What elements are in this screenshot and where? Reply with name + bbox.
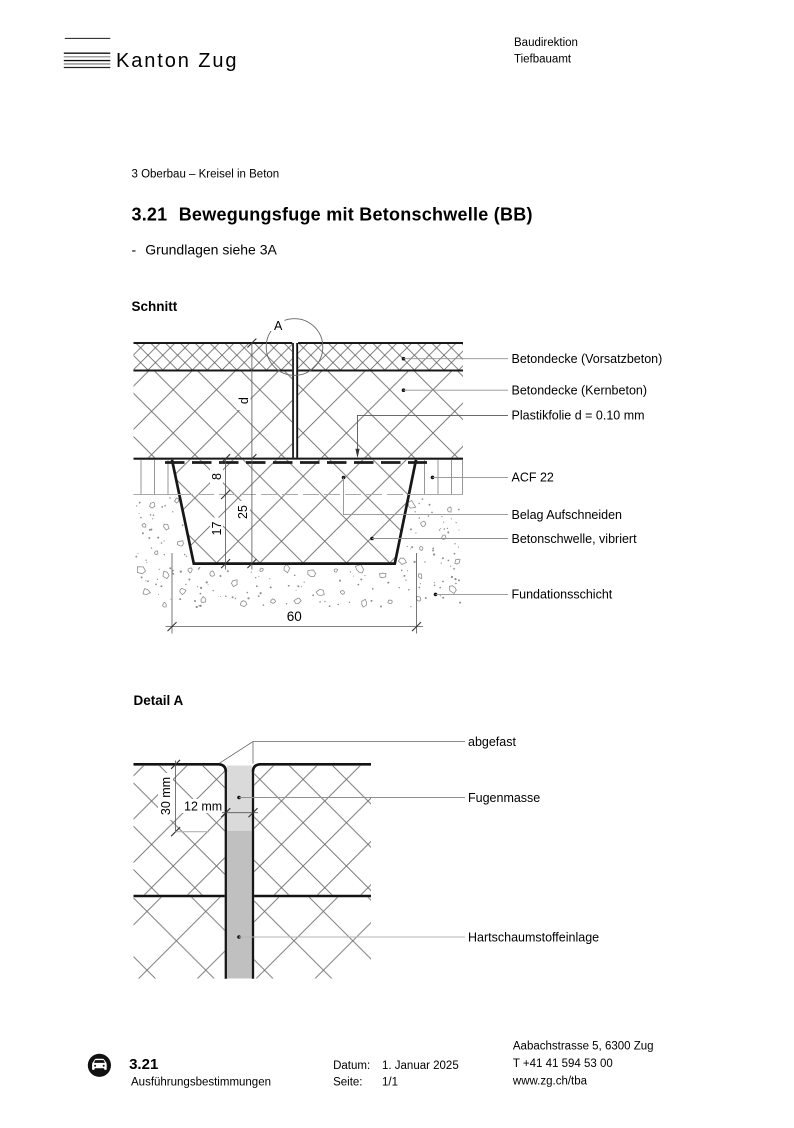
svg-text:Aabachstrasse 5, 6300 Zug: Aabachstrasse 5, 6300 Zug [513, 1041, 654, 1053]
svg-text:Fundationsschicht: Fundationsschicht [512, 588, 613, 602]
svg-text:60: 60 [287, 609, 302, 624]
svg-text:ACF 22: ACF 22 [512, 471, 554, 485]
svg-text:25: 25 [236, 505, 250, 519]
svg-text:Seite:: Seite: [333, 1076, 362, 1088]
svg-text:Fugenmasse: Fugenmasse [468, 791, 540, 805]
svg-text:1/1: 1/1 [382, 1076, 398, 1088]
svg-text:8: 8 [210, 473, 224, 480]
svg-text:12 mm: 12 mm [184, 800, 222, 814]
svg-text:d: d [237, 397, 251, 404]
svg-text:Tiefbauamt: Tiefbauamt [514, 54, 572, 66]
svg-text:-: - [132, 242, 137, 258]
svg-text:Datum:: Datum: [333, 1060, 370, 1072]
svg-text:3 Oberbau – Kreisel in Beton: 3 Oberbau – Kreisel in Beton [132, 169, 280, 181]
svg-text:Betonschwelle, vibriert: Betonschwelle, vibriert [512, 532, 638, 546]
svg-text:Belag Aufschneiden: Belag Aufschneiden [512, 508, 623, 522]
svg-text:Baudirektion: Baudirektion [514, 37, 578, 49]
svg-text:www.zg.ch/tba: www.zg.ch/tba [512, 1076, 588, 1088]
svg-text:3.21: 3.21 [132, 205, 168, 225]
svg-text:Kanton Zug: Kanton Zug [116, 50, 238, 72]
svg-text:A: A [274, 319, 283, 333]
svg-text:Hartschaumstoffeinlage: Hartschaumstoffeinlage [468, 930, 599, 944]
svg-text:Plastikfolie d = 0.10 mm: Plastikfolie d = 0.10 mm [512, 409, 645, 423]
svg-text:Betondecke (Vorsatzbeton): Betondecke (Vorsatzbeton) [512, 352, 663, 366]
svg-text:abgefast: abgefast [468, 735, 516, 749]
svg-text:17: 17 [210, 522, 224, 536]
svg-text:Ausführungsbestimmungen: Ausführungsbestimmungen [131, 1076, 271, 1088]
svg-text:Grundlagen siehe 3A: Grundlagen siehe 3A [145, 242, 277, 258]
svg-text:3.21: 3.21 [129, 1056, 158, 1073]
svg-text:T +41 41 594 53 00: T +41 41 594 53 00 [513, 1058, 613, 1070]
svg-text:Betondecke (Kernbeton): Betondecke (Kernbeton) [512, 384, 648, 398]
svg-text:Detail A: Detail A [134, 693, 184, 708]
svg-text:Schnitt: Schnitt [132, 299, 178, 314]
svg-text:1. Januar 2025: 1. Januar 2025 [382, 1060, 459, 1072]
svg-text:Bewegungsfuge mit Betonschwell: Bewegungsfuge mit Betonschwelle (BB) [179, 205, 533, 225]
svg-text:30 mm: 30 mm [159, 777, 173, 815]
